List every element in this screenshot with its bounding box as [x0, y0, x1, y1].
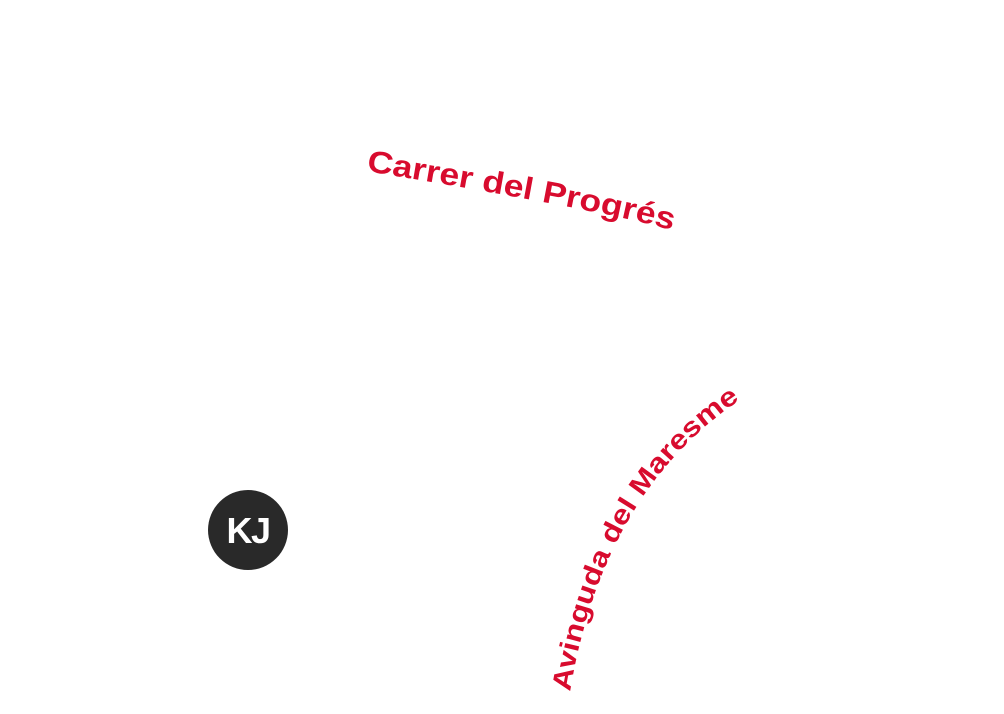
- station-marker-label: KJ: [226, 510, 269, 551]
- street-label-avinguda-del-maresme: Avinguda del Maresme: [546, 380, 743, 693]
- street-label-carrer-del-progres-text: Carrer del Progrés: [365, 143, 680, 237]
- street-label-carrer-del-progres: Carrer del Progrés: [365, 143, 680, 237]
- map-viewport[interactable]: Carrer del Progrés Avinguda del Maresme …: [0, 0, 1004, 714]
- station-marker-kj[interactable]: KJ: [208, 490, 288, 570]
- map-canvas[interactable]: Carrer del Progrés Avinguda del Maresme …: [0, 0, 1004, 714]
- street-label-avinguda-del-maresme-text: Avinguda del Maresme: [546, 380, 743, 693]
